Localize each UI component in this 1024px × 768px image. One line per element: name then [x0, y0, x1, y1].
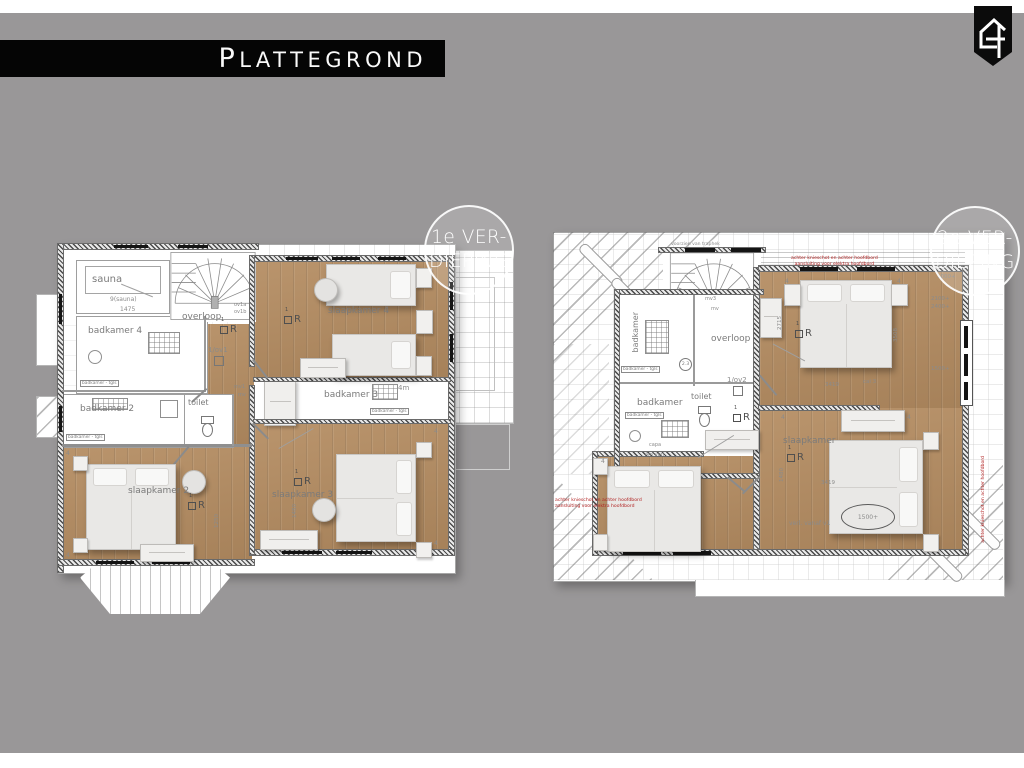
label-badkamer2: badkamer 2 [80, 404, 134, 414]
label-slaapkamer2: slaapkamer 2 [128, 486, 189, 496]
badge-floor-1: 1e VER- DIEPING [424, 205, 514, 295]
label-ov2: 1/ov2 [727, 376, 747, 384]
duvet-split [131, 488, 132, 549]
wall [58, 244, 258, 249]
wall [615, 290, 763, 294]
duvet-split [846, 304, 847, 367]
label-verl-v1: verl. vanaf v1 [789, 520, 830, 527]
window-glazing [282, 551, 322, 554]
dim-1480: 1480 [779, 468, 785, 482]
dim-3419: 3419 [825, 382, 839, 388]
partition [232, 394, 234, 446]
marker-square [220, 326, 228, 334]
nightstand [416, 356, 432, 376]
window-glazing [964, 354, 968, 376]
label-overloop: overloop [711, 334, 750, 344]
dim-2100: 2100+ [931, 296, 950, 302]
dim-3419b: 3419 [821, 480, 835, 486]
label-slaapkamer4: slaapkamer 4 [328, 306, 389, 316]
dresser [260, 530, 318, 550]
label-sauna-ref: 9(sauna) [110, 296, 137, 303]
pillow [396, 502, 412, 536]
dim-3508: 3508 [893, 328, 899, 342]
badge-floor-2-line1: 2e VER- [937, 227, 1013, 251]
label-mv: mv [238, 392, 246, 398]
label-badkamer-onder: badkamer [637, 398, 683, 408]
pillow [807, 284, 842, 302]
label-mv: mv [711, 306, 719, 312]
pillow [390, 271, 411, 300]
dim-cal3: cal 3 [863, 379, 876, 385]
r-marker: 1R [733, 412, 750, 423]
label-1500: 1500+ [858, 514, 878, 521]
left-wing-a [36, 294, 60, 366]
window-glazing [964, 326, 968, 348]
footprint-extension [695, 580, 1005, 597]
tiles-note: badkamer - tgls [625, 412, 664, 419]
red-note-left: achter knieschot en achter hoofdbord aan… [555, 498, 642, 510]
toilet-icon [200, 416, 214, 438]
tick-4: 4 [434, 428, 438, 435]
dim-2400: 2400+ [931, 304, 950, 310]
label-4m-verl: 4m verl [645, 452, 664, 458]
badge-floor-2-line2: DIEPING [935, 251, 1015, 275]
tick-4: 4 [781, 414, 785, 421]
window-glazing [685, 248, 715, 252]
wall [250, 256, 254, 366]
tick-4: 4 [601, 458, 605, 465]
round-table [312, 498, 336, 522]
r-marker: 1R [284, 314, 301, 325]
ov2-box [733, 386, 743, 396]
bed-double [86, 464, 176, 550]
duvet-split [830, 487, 897, 488]
dim-2715: 2715 [777, 316, 783, 330]
partition [62, 444, 252, 447]
badge-floor-1-line2: DIEPING [429, 250, 509, 274]
window-glazing [450, 334, 453, 362]
tick-4: 4 [785, 278, 789, 285]
wall [254, 378, 450, 381]
shower-tray [661, 420, 689, 438]
washer [160, 400, 178, 418]
bath-fixture [645, 320, 669, 354]
stair-note: voorzien van traphek [671, 242, 720, 247]
window-glazing [332, 257, 360, 260]
window-glazing [336, 551, 372, 554]
label-overloop: overloop [182, 312, 221, 322]
label-slaapkamer3: slaapkamer 3 [272, 490, 333, 500]
pillow [899, 492, 918, 528]
badge-floor-2: 2e VER- DIEPING [930, 206, 1020, 296]
dim-1500: 1500+ [931, 366, 950, 372]
pillow [614, 470, 650, 488]
tick-4: 4 [897, 278, 901, 285]
window-glazing [178, 245, 208, 248]
nightstand [784, 284, 801, 306]
ov1-box [214, 356, 224, 366]
red-note-right: achter knieschot en achter hoofdbord [981, 456, 987, 543]
tiles-note: badkamer - tgls [80, 380, 119, 387]
marker-square [294, 478, 302, 486]
badge-floor-1-line1: 1e VER- [431, 226, 507, 250]
window-glazing [378, 257, 406, 260]
nightstand [891, 284, 908, 306]
sink [629, 430, 641, 442]
label-ov1b: ov1b [234, 309, 246, 315]
page-title: PLATTEGROND [218, 43, 427, 74]
floorplan-first-floor: sauna 9(sauna) 1475 badkamer 4 badkamer … [36, 238, 514, 613]
nightstand [73, 456, 88, 471]
bath-fixture [372, 384, 398, 400]
tiles-note: badkamer - tgls [66, 434, 105, 441]
marker-square [795, 330, 803, 338]
circle-marker-23: 2.3 [679, 358, 692, 371]
sink [88, 350, 102, 364]
window-glazing [59, 294, 62, 324]
label-toilet: toilet [188, 398, 209, 407]
label-toilet: toilet [691, 392, 712, 401]
dresser [300, 358, 346, 378]
label-mv3: mv3 [705, 296, 716, 302]
label-ov1a: ov1a [234, 302, 246, 308]
house-4-logo-icon [972, 6, 1014, 70]
r-marker: 1R [188, 500, 205, 511]
pillow [391, 341, 411, 370]
pillow [850, 284, 885, 302]
plattegrond-slide: { "header": { "title": "PLATTEGROND" }, … [0, 0, 1024, 768]
title-bar: PLATTEGROND [0, 40, 445, 77]
tick-4: 4 [66, 450, 70, 457]
window-glazing [964, 382, 968, 400]
round-table [314, 278, 338, 302]
tiles-note: badkamer - tgls [370, 408, 409, 415]
pillow [899, 447, 918, 483]
r-marker: 1R [795, 328, 812, 339]
window-glazing [96, 561, 134, 564]
pillow [658, 470, 694, 488]
wall [963, 266, 968, 555]
label-badkamer-boven: badkamer [631, 312, 640, 352]
wall [254, 420, 450, 423]
bed-double [800, 280, 892, 368]
r-marker: 1R [220, 324, 237, 335]
label-ov1: 1/ov1 [208, 346, 228, 354]
bed-single [326, 264, 416, 306]
nightstand [416, 542, 432, 558]
label-badkamer4: badkamer 4 [88, 326, 142, 336]
marker-square [284, 316, 292, 324]
label-badkamer3-size: 4m [398, 384, 409, 392]
pillow [93, 468, 127, 486]
partition [204, 316, 206, 392]
shower-tray [148, 332, 180, 354]
partition [62, 390, 206, 392]
label-sauna-dim: 1475 [120, 306, 135, 313]
r-marker: 1R [294, 476, 311, 487]
marker-square [733, 414, 741, 422]
dresser [140, 544, 194, 562]
label-mv1: mv1 [234, 384, 245, 390]
nightstand [593, 534, 608, 551]
nightstand [73, 538, 88, 553]
tick-4: 4 [66, 552, 70, 559]
toilet-icon [697, 406, 711, 428]
bed-double [336, 454, 416, 542]
window-glazing [59, 406, 62, 432]
wall [615, 290, 619, 478]
window-glazing [114, 245, 148, 248]
nightstand [923, 432, 939, 450]
pillow [135, 468, 169, 486]
left-wing-b [36, 396, 60, 438]
nightstand [416, 310, 433, 334]
marker-square [787, 454, 795, 462]
dim-1250: 1250 [214, 514, 220, 528]
window-glazing [286, 257, 318, 260]
height-oval: 1500+ [841, 504, 895, 530]
top-strip [0, 0, 1024, 13]
nightstand [416, 442, 432, 458]
marker-square [188, 502, 196, 510]
pillow [396, 460, 412, 494]
duvet-split [337, 498, 394, 499]
red-note-top: achter knieschot en achter hoofdbord aan… [791, 256, 878, 268]
tick-4: 4 [434, 540, 438, 547]
nightstand [923, 534, 939, 552]
wall [250, 386, 254, 554]
label-capa: capa [649, 442, 661, 448]
dim-1480: 1480 [292, 504, 298, 518]
partition [693, 290, 695, 386]
bay-window [80, 562, 230, 614]
duvet-split [654, 490, 655, 551]
dresser [841, 410, 905, 432]
wall [754, 268, 759, 555]
tiles-note: badkamer - tgls [621, 366, 660, 373]
label-sauna: sauna [92, 274, 122, 285]
r-marker: 1R [787, 452, 804, 463]
window-glazing [731, 248, 761, 252]
label-badkamer3: badkamer 3 [324, 390, 378, 400]
bottom-strip [0, 753, 1024, 768]
tick-4: 4 [907, 414, 911, 421]
